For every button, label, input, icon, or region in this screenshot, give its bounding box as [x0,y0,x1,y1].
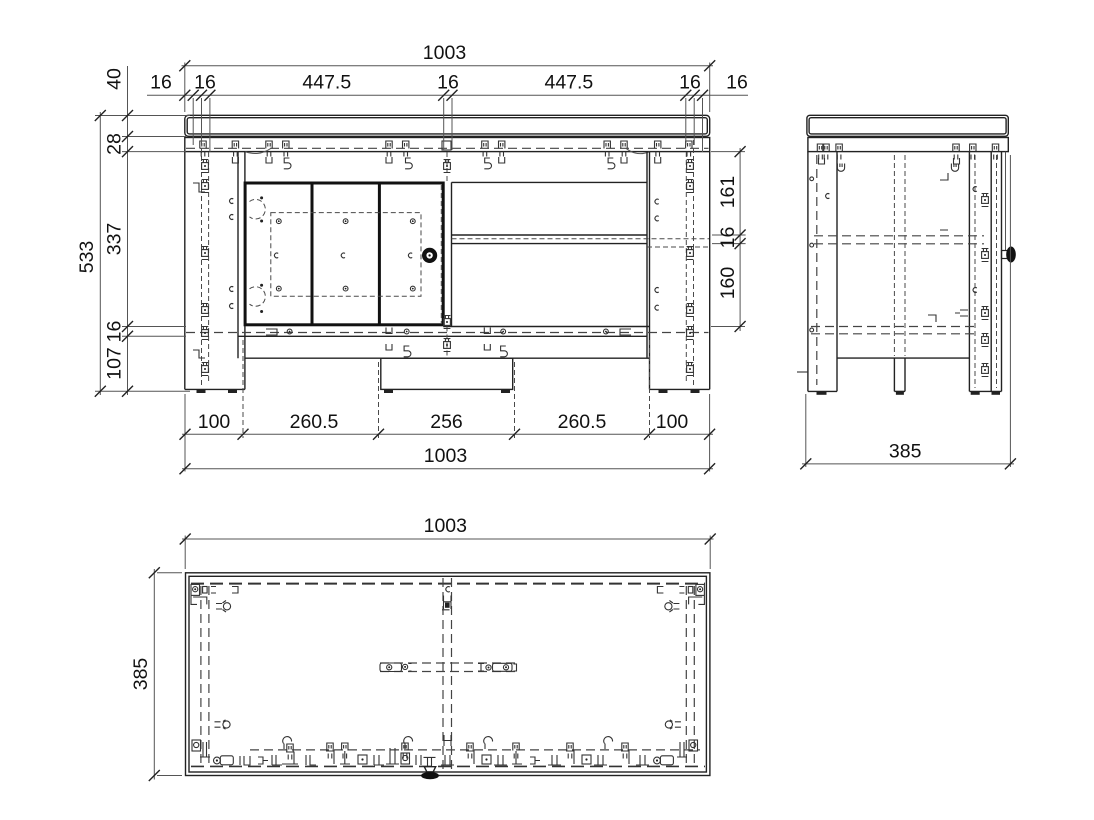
svg-text:28: 28 [104,133,126,155]
svg-text:256: 256 [430,411,463,433]
svg-text:40: 40 [104,68,126,90]
svg-text:16: 16 [104,321,126,343]
svg-text:160: 160 [717,267,739,300]
svg-text:16: 16 [679,72,701,94]
svg-text:260.5: 260.5 [558,411,607,433]
svg-text:16: 16 [150,72,172,94]
svg-text:16: 16 [194,72,216,94]
svg-text:16: 16 [726,72,748,94]
svg-text:260.5: 260.5 [290,411,339,433]
svg-text:533: 533 [76,241,98,274]
svg-text:337: 337 [104,223,126,256]
svg-text:16: 16 [717,227,739,249]
svg-text:447.5: 447.5 [302,72,351,94]
svg-text:107: 107 [104,347,126,380]
svg-text:100: 100 [656,411,689,433]
svg-text:1003: 1003 [423,42,466,64]
svg-text:16: 16 [437,72,459,94]
svg-text:1003: 1003 [424,445,467,467]
svg-text:1003: 1003 [424,515,467,537]
svg-text:385: 385 [889,440,922,462]
svg-text:385: 385 [130,658,152,691]
svg-text:447.5: 447.5 [544,72,593,94]
svg-text:161: 161 [717,176,739,209]
svg-text:100: 100 [198,411,231,433]
